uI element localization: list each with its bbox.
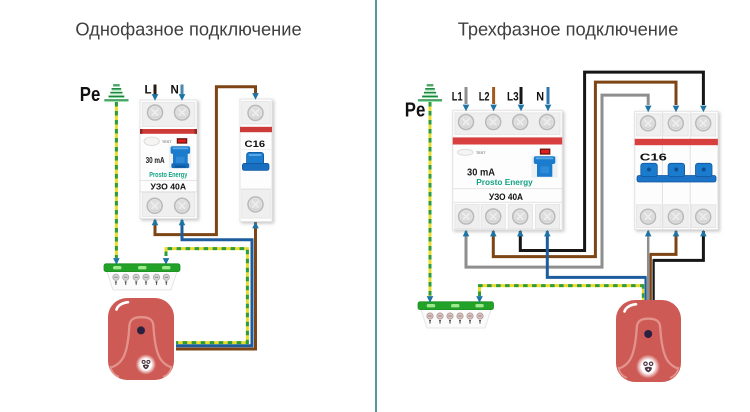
- svg-text:Однофазное подключение: Однофазное подключение: [75, 19, 301, 40]
- svg-text:L3: L3: [507, 92, 519, 104]
- svg-text:Prosto Energy: Prosto Energy: [476, 177, 533, 187]
- svg-text:УЗО 40А: УЗО 40А: [489, 192, 523, 203]
- svg-text:L1: L1: [452, 92, 463, 104]
- svg-text:N: N: [171, 85, 179, 97]
- svg-text:УЗО 40А: УЗО 40А: [151, 182, 187, 192]
- svg-text:L: L: [145, 85, 152, 97]
- svg-text:Трехфазное подключение: Трехфазное подключение: [458, 19, 679, 40]
- svg-text:Pe: Pe: [80, 84, 101, 106]
- svg-text:L2: L2: [479, 92, 490, 104]
- svg-text:Pe: Pe: [405, 100, 426, 122]
- svg-text:TEST: TEST: [476, 150, 486, 155]
- svg-text:N: N: [536, 92, 544, 104]
- svg-text:30 mA: 30 mA: [146, 156, 165, 165]
- svg-text:TEST: TEST: [162, 139, 172, 144]
- svg-text:Prosto Energy: Prosto Energy: [149, 170, 187, 179]
- svg-text:C16: C16: [245, 139, 266, 149]
- svg-text:C16: C16: [640, 152, 668, 163]
